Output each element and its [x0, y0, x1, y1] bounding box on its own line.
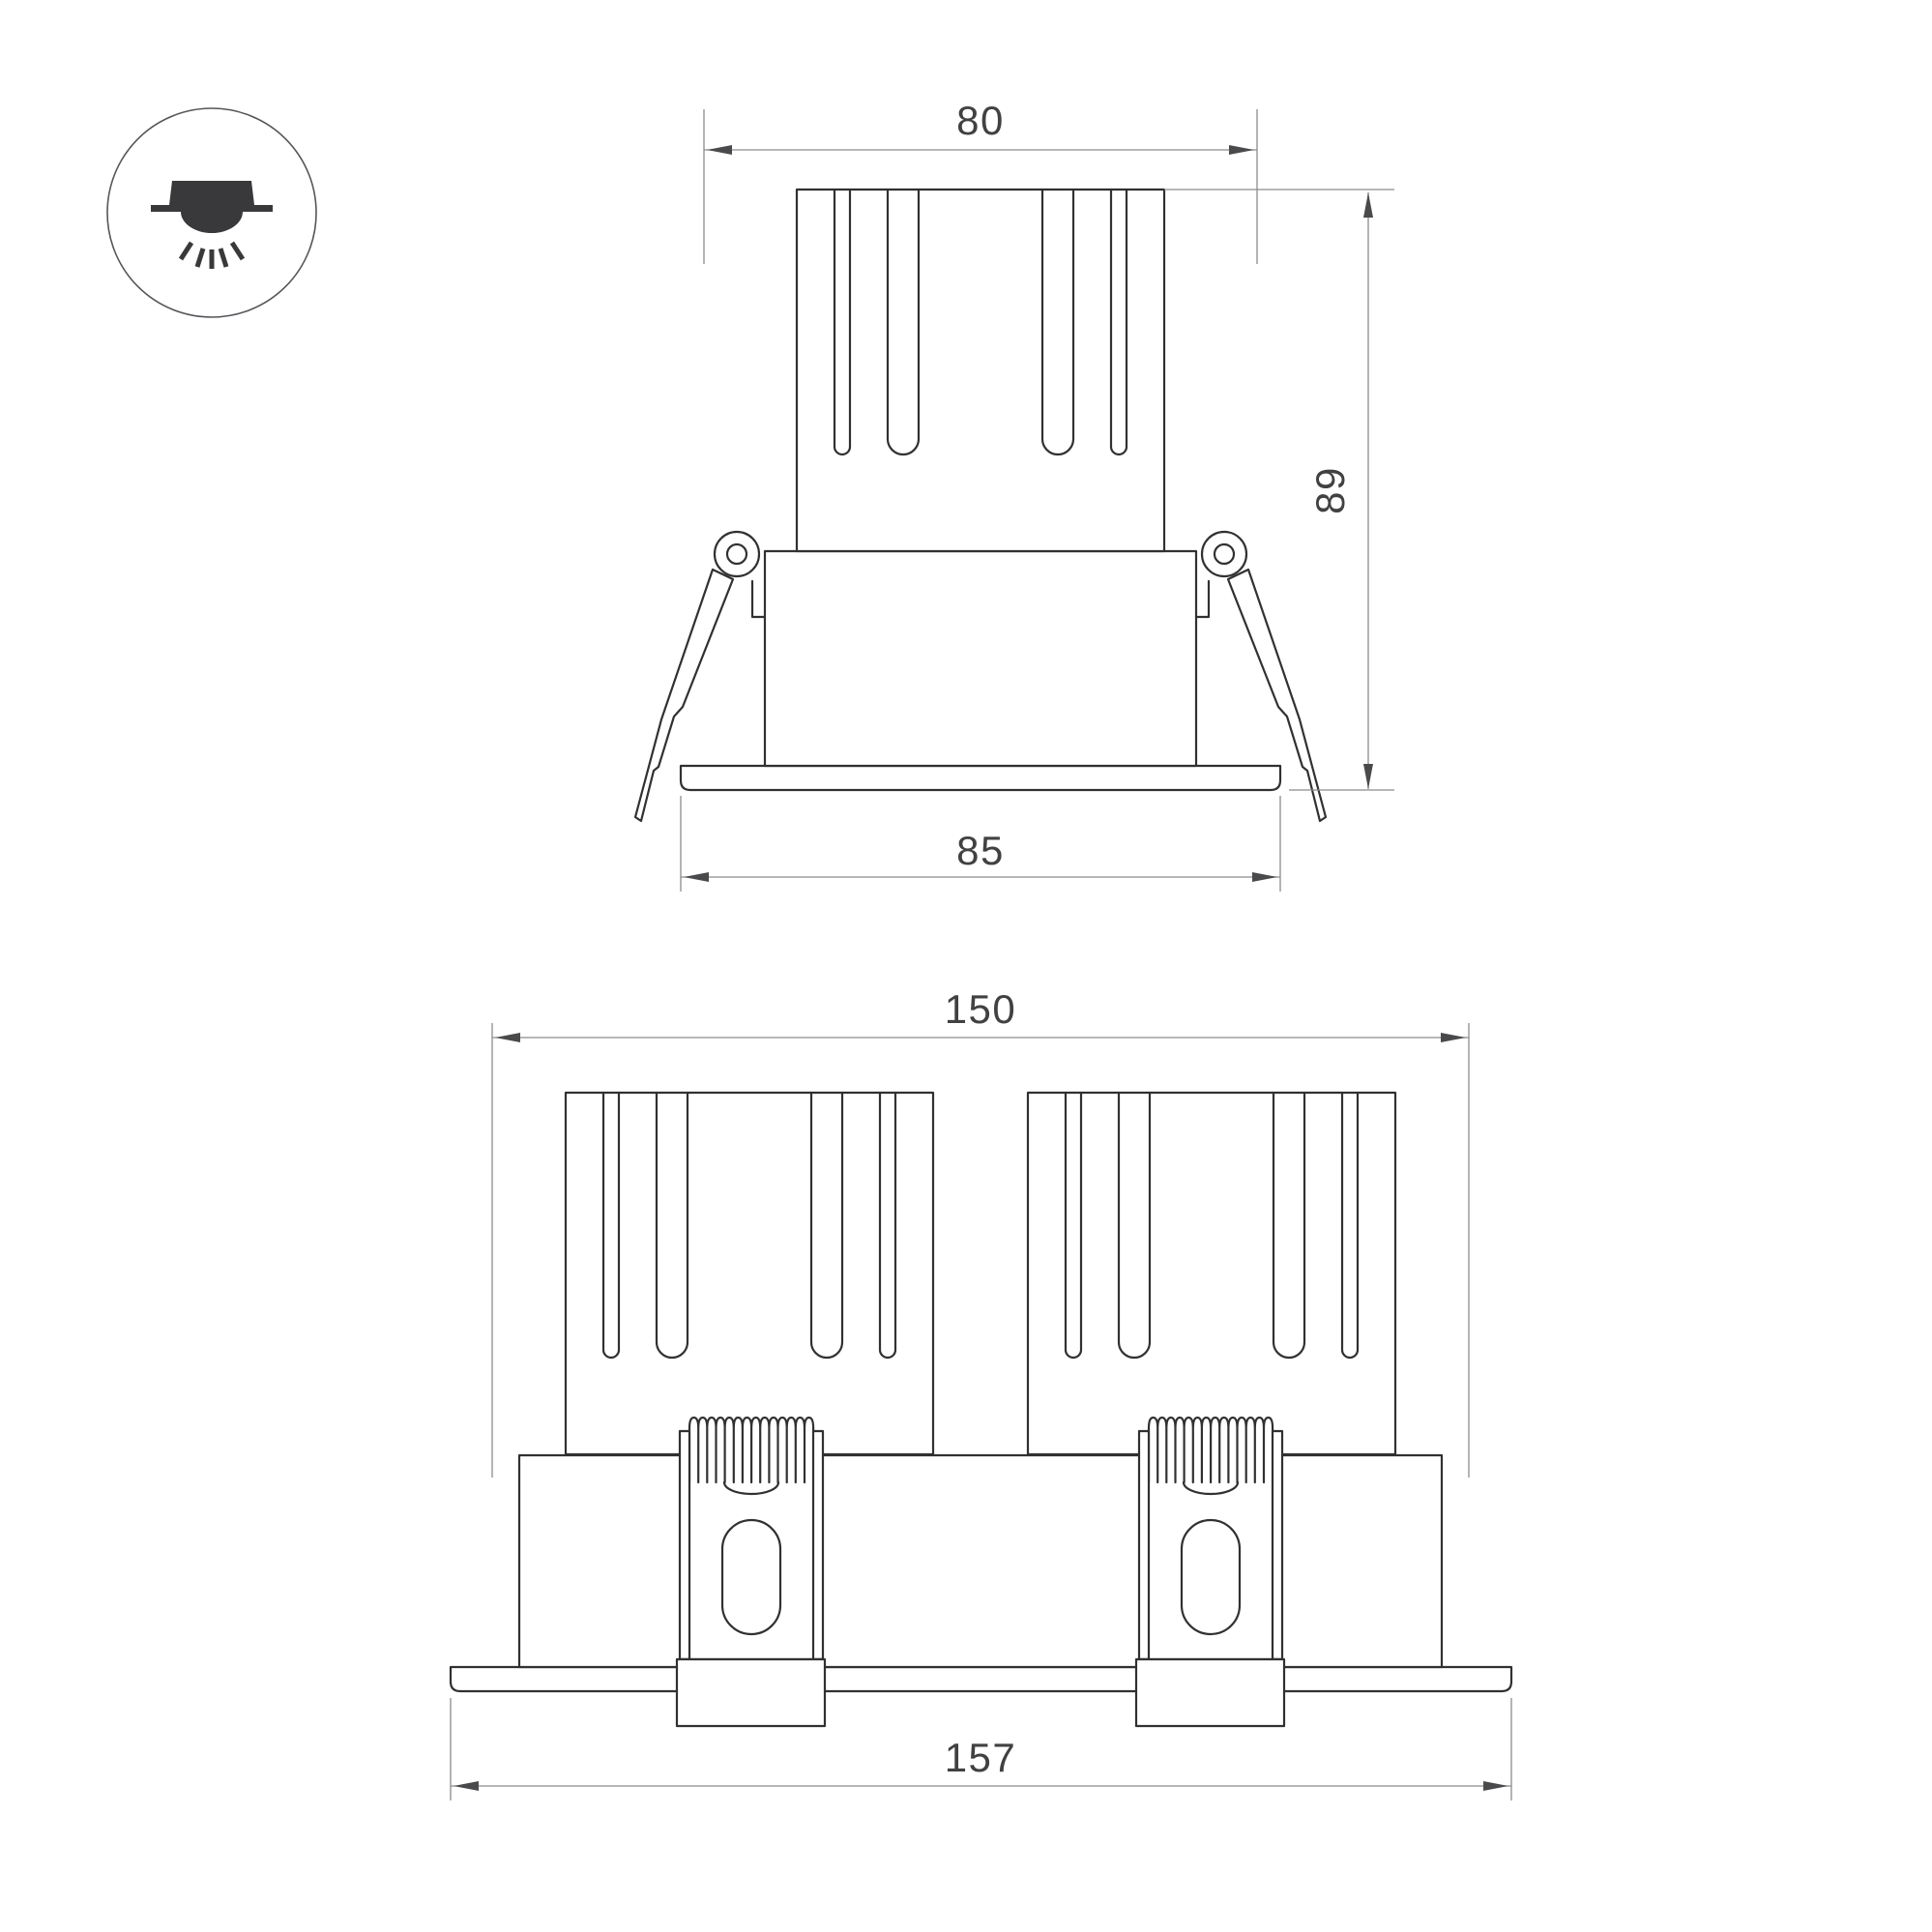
dim-label-150: 150 [945, 986, 1017, 1032]
arrowhead-left [707, 145, 732, 155]
arrowhead-right [1229, 145, 1254, 155]
dimension-drawing-page: 80 89 85 [0, 0, 1932, 1932]
arrowhead-left [495, 1033, 520, 1042]
dim-label-157: 157 [945, 1735, 1017, 1780]
technical-drawing: 80 89 85 [0, 0, 1932, 1932]
heatsink-right [1028, 1093, 1395, 1454]
arrowhead-down [1363, 764, 1373, 789]
housing-body [765, 551, 1196, 766]
arrowhead-left [684, 872, 709, 882]
icon-ceiling-flange [151, 205, 273, 212]
dim-label-85: 85 [956, 828, 1005, 873]
dim-flange-width-double: 157 [451, 1698, 1511, 1800]
icon-lamp-body [169, 181, 254, 205]
dim-flange-width: 85 [681, 796, 1280, 892]
arrowhead-right [1252, 872, 1277, 882]
icon-lamp-dome [181, 212, 243, 233]
heatsink-front [797, 190, 1164, 551]
recessed-downlight-icon [107, 108, 316, 317]
heatsink-left [566, 1093, 933, 1454]
dim-label-80: 80 [956, 98, 1005, 143]
trim-flange [681, 766, 1280, 790]
arrowhead-left [454, 1781, 479, 1791]
trim-flange-double [451, 1667, 1511, 1691]
dim-label-89: 89 [1307, 466, 1353, 514]
arrowhead-right [1483, 1781, 1508, 1791]
arrowhead-right [1441, 1033, 1466, 1042]
double-view: 150 157 [451, 986, 1511, 1800]
arrowhead-up [1363, 192, 1373, 218]
housing-body-double [519, 1455, 1442, 1667]
icon-light-rays [181, 243, 243, 269]
front-view: 80 89 85 [635, 98, 1394, 892]
